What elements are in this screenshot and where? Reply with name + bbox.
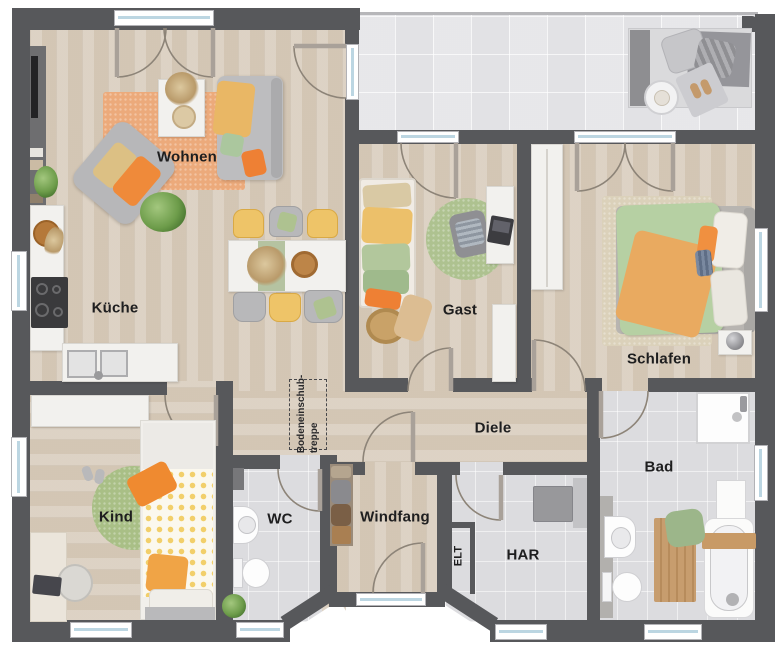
sink-basin [611,527,631,549]
room-label-har: HAR [506,548,539,563]
tv [31,56,38,118]
wardrobe-door-seam [546,149,548,287]
shower-fixture [740,396,747,412]
burner [36,283,48,295]
orange-cushion [364,288,402,311]
front-door-sill [356,593,426,606]
room-label-wohnen: Wohnen [157,150,217,165]
bath-sink [604,516,636,558]
kitchen-window [11,251,27,311]
sink-basin [100,350,128,377]
room-label-wc: WC [267,512,292,527]
attic-hatch-label-line2: treppe [308,375,321,453]
floor-palm [140,192,186,232]
room-label-windfang: Windfang [360,510,430,525]
kids-room-window-west [11,437,27,497]
guest-sideboard [492,304,516,382]
utility-counter [573,478,587,528]
sink-basin [238,516,256,534]
kids-bed [140,420,216,620]
orange-cushion [241,148,268,178]
plant [34,166,58,198]
toilet-bowl [242,558,270,588]
utility-window [495,624,547,640]
room-label-kind: Kind [99,510,133,525]
pillow [710,269,749,328]
living-terrace-french-door [114,10,214,26]
bathtub [704,518,754,618]
kids-wardrobe [31,395,149,427]
cistern [233,468,244,490]
wall-guest-bedroom [517,144,531,378]
hat-shelf [331,466,351,478]
kitchen-counter-bottom [62,343,178,382]
sofa-back [271,78,282,178]
desk-chair [57,564,93,602]
throw-blanket [212,80,255,138]
toilet-bowl [612,572,642,602]
table-decor [654,90,670,106]
dining-chair [269,293,301,322]
wall-living-terrace-a [345,26,359,46]
wall-kids-wc [216,381,233,620]
cooktop [31,277,68,328]
laptop-screen [492,220,511,234]
toilet-tank [602,572,612,602]
faucet [94,371,103,380]
terrace-side-table [644,80,679,115]
wall-bedroom-south [648,378,775,392]
dining-chair [233,292,266,322]
striped-cushion [454,218,485,249]
wall-elt-divider [470,526,475,594]
guest-terrace-door [397,131,459,143]
burner [35,303,49,317]
sofa [217,76,283,180]
wall-utility-north-b [503,462,600,475]
dried-plant [165,72,199,106]
room-label-gast: Gast [443,303,477,318]
shower-drain [732,412,742,422]
bathroom-window-east [754,445,768,501]
tub-faucet [726,593,739,606]
wardrobe [531,144,563,290]
bath-caddy [702,533,756,549]
laptop [32,575,62,597]
terrace-edge [357,12,758,15]
sink-basin [67,350,97,378]
room-label-schlafen: Schlafen [627,352,691,367]
tan-pillow [362,182,412,209]
daybed [359,178,416,308]
attic-hatch-label: Bodeneinschub- treppe [295,375,321,453]
decor-tray [172,105,196,129]
wall-utility-north-a [452,462,460,475]
lamp [726,332,744,350]
wall-hall-bath [587,391,600,620]
wall-right [755,14,775,642]
coat [331,480,351,504]
room-label-kueche: Küche [92,301,139,316]
kids-room-window-south [70,622,132,638]
coat [331,504,351,526]
fruit-bowl [291,251,318,278]
room-label-bad: Bad [645,460,674,475]
wall-kitchen-kids [30,381,167,395]
attic-hatch-label-line1: Bodeneinschub- [295,375,308,453]
dining-table [228,240,346,292]
wall-living-terrace-b [345,98,359,144]
wc-sink [233,506,259,544]
napkin [312,295,337,320]
laptop [487,215,514,246]
wall-left [12,8,30,642]
striped-pillow [695,249,714,277]
living-terrace-side-door [346,44,359,100]
bedroom-terrace-french-door [574,131,676,143]
green-cushion [362,243,411,273]
bedroom-window-east [754,228,768,312]
wall-dining-guest [345,144,359,378]
dining-chair [307,209,338,238]
flower-bouquet [247,246,287,286]
shoe-bench [332,526,351,544]
wall-wc-north [233,455,280,469]
napkin [276,211,298,233]
bathroom-window-south [644,624,702,640]
green-towel [664,508,707,549]
floor-plan: Bodeneinschub- treppe [0,0,775,651]
appliance [533,486,573,522]
burner [52,285,61,294]
dining-chair [233,209,264,238]
shower [696,392,750,444]
bed-end [145,607,215,620]
room-label-diele: Diele [475,421,512,436]
bath-cabinet [716,480,746,520]
yellow-cushion [361,207,413,246]
wall-guest-south-a [345,378,408,392]
shelf-books [30,148,43,157]
plant [222,594,246,618]
wall-bedroom-south-stub [585,378,602,392]
coat-rack [330,464,353,546]
wc-window [236,622,284,638]
dining-chair [269,206,303,237]
hallway-floor [233,391,587,462]
wall-entry-utility [437,462,452,594]
room-label-elt: ELT [454,546,465,567]
dining-chair [304,290,343,323]
burner [53,307,63,317]
